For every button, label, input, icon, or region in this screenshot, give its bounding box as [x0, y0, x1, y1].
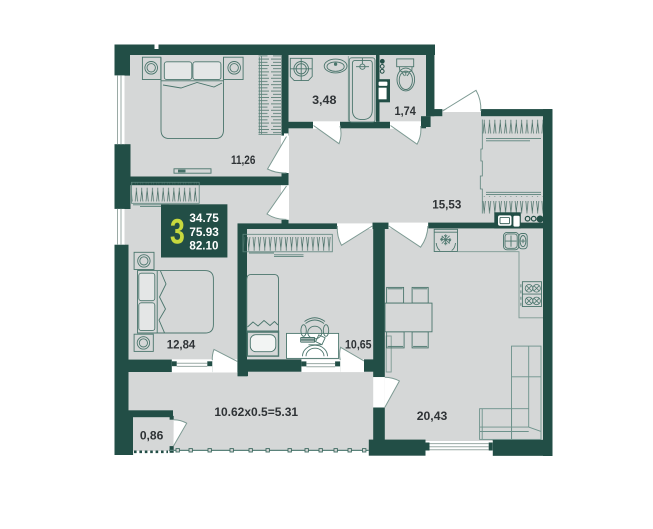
svg-text:3,48: 3,48: [312, 93, 337, 107]
svg-text:75.93: 75.93: [189, 225, 219, 239]
svg-text:20,43: 20,43: [417, 409, 448, 423]
svg-text:82.10: 82.10: [189, 238, 218, 252]
svg-text:15,53: 15,53: [432, 197, 461, 211]
svg-text:12,84: 12,84: [167, 337, 196, 351]
svg-text:3: 3: [170, 213, 185, 252]
svg-text:10,65: 10,65: [345, 338, 372, 352]
svg-text:11,26: 11,26: [231, 153, 256, 167]
svg-text:0,86: 0,86: [140, 428, 164, 442]
svg-text:1,74: 1,74: [395, 104, 416, 118]
svg-text:10.62x0.5=5.31: 10.62x0.5=5.31: [214, 405, 298, 419]
svg-text:34.75: 34.75: [189, 211, 219, 225]
